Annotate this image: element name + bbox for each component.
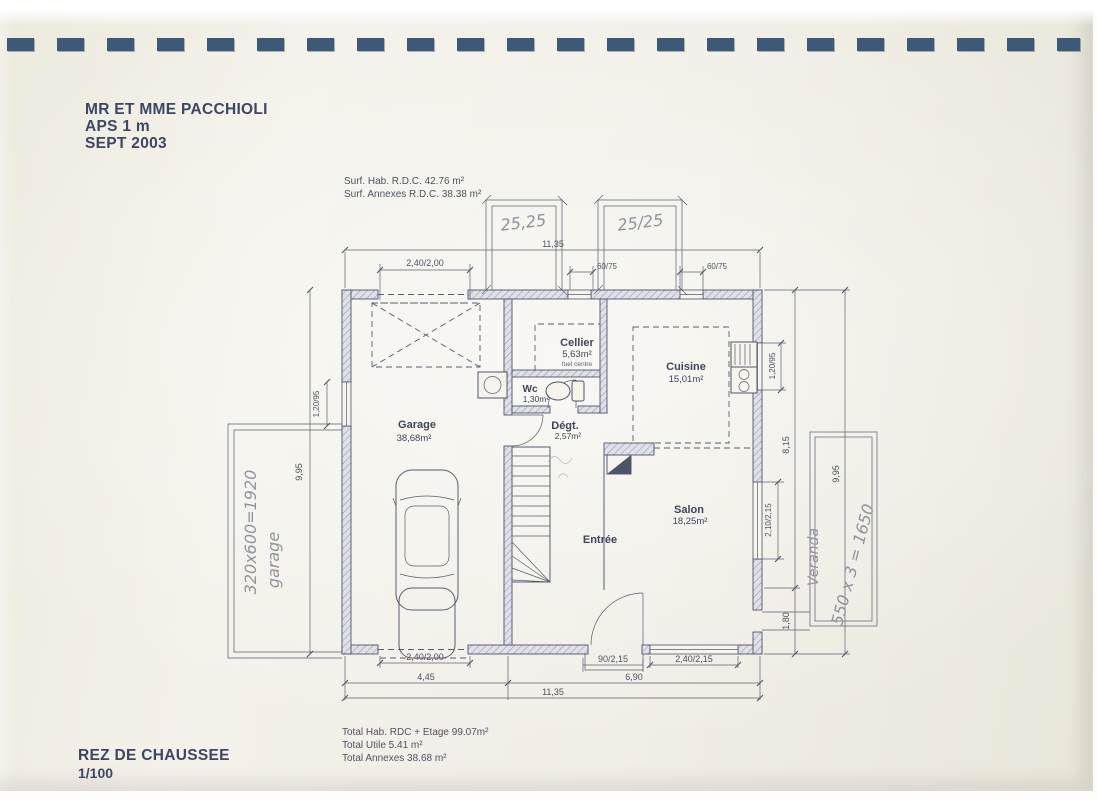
room-degagement-area: 2,57m² (555, 431, 582, 441)
room-cuisine-name: Cuisine (666, 361, 706, 373)
pencil-squiggle (548, 456, 572, 478)
pencil-veranda-word: Veranda (806, 528, 822, 586)
pencil-terrace-word: garage (264, 532, 283, 589)
dim-roof-window-2: 60/75 (707, 262, 728, 271)
room-labels: Garage 38,68m² Cellier 5,63m² fuel centr… (397, 337, 708, 546)
dim-right-overall: 9,95 (831, 465, 841, 483)
dim-kitchen-window: 1,20/95 (768, 352, 777, 379)
kitchen-hob (731, 367, 757, 393)
boiler (478, 372, 507, 398)
dim-right-lower: 1,80 (781, 612, 791, 630)
room-salon-area: 18,25m² (673, 516, 708, 527)
annex-outlines (228, 424, 877, 670)
toilet (572, 381, 584, 401)
dim-top-overall: 11,35 (542, 239, 564, 249)
pencil-roof-box-left: 25,25 (499, 210, 547, 234)
dim-garage-window: 1,20/95 (312, 390, 321, 417)
room-cellier-area: 5,63m² (562, 349, 592, 360)
staircase (512, 447, 550, 582)
dim-garage-door-bottom: 2,40/2,00 (406, 652, 444, 662)
dimension-lines (307, 247, 850, 701)
roof-window-boxes (482, 195, 687, 295)
garage-doors (372, 295, 480, 659)
room-cellier-name: Cellier (560, 337, 594, 349)
dim-garage-door-top: 2,40/2,00 (406, 258, 444, 268)
pencil-veranda-calc: 550 x 3 = 1650 (827, 502, 878, 627)
dim-bottom-garage: 4,45 (417, 672, 435, 682)
room-salon-name: Salon (674, 504, 704, 516)
room-cuisine-area: 15,01m² (669, 374, 704, 385)
dim-salon-window-right: 2,10/2,15 (764, 503, 773, 537)
dim-right-upper: 8,15 (781, 436, 791, 454)
room-cellier-note: fuel centre (562, 361, 593, 368)
dim-bottom-overall: 11,35 (542, 687, 564, 697)
dim-salon-window-bottom: 2,40/2,15 (675, 654, 713, 664)
room-garage-area: 38,68m² (397, 433, 432, 444)
dim-bottom-living: 6,90 (625, 672, 643, 682)
room-garage-name: Garage (398, 419, 436, 431)
car-top-view (393, 470, 461, 658)
dim-entry-door: 90/2,15 (598, 654, 628, 664)
handwritten-notes: 25,25 25/25 320x600=1920 garage Veranda … (241, 210, 878, 627)
dim-left-overall: 9,95 (294, 463, 304, 481)
room-entree-name: Entrée (583, 534, 617, 546)
room-wc-area: 1,30m² (523, 394, 550, 404)
pencil-roof-box-right: 25/25 (616, 210, 664, 234)
floor-plan-drawing: 11,35 2,40/2,00 60/75 60/75 9,95 1,20/95… (0, 0, 1098, 800)
dim-roof-window-1: 60/75 (597, 262, 618, 271)
pencil-terrace-calc: 320x600=1920 (241, 470, 260, 595)
car-ghost (399, 588, 455, 658)
